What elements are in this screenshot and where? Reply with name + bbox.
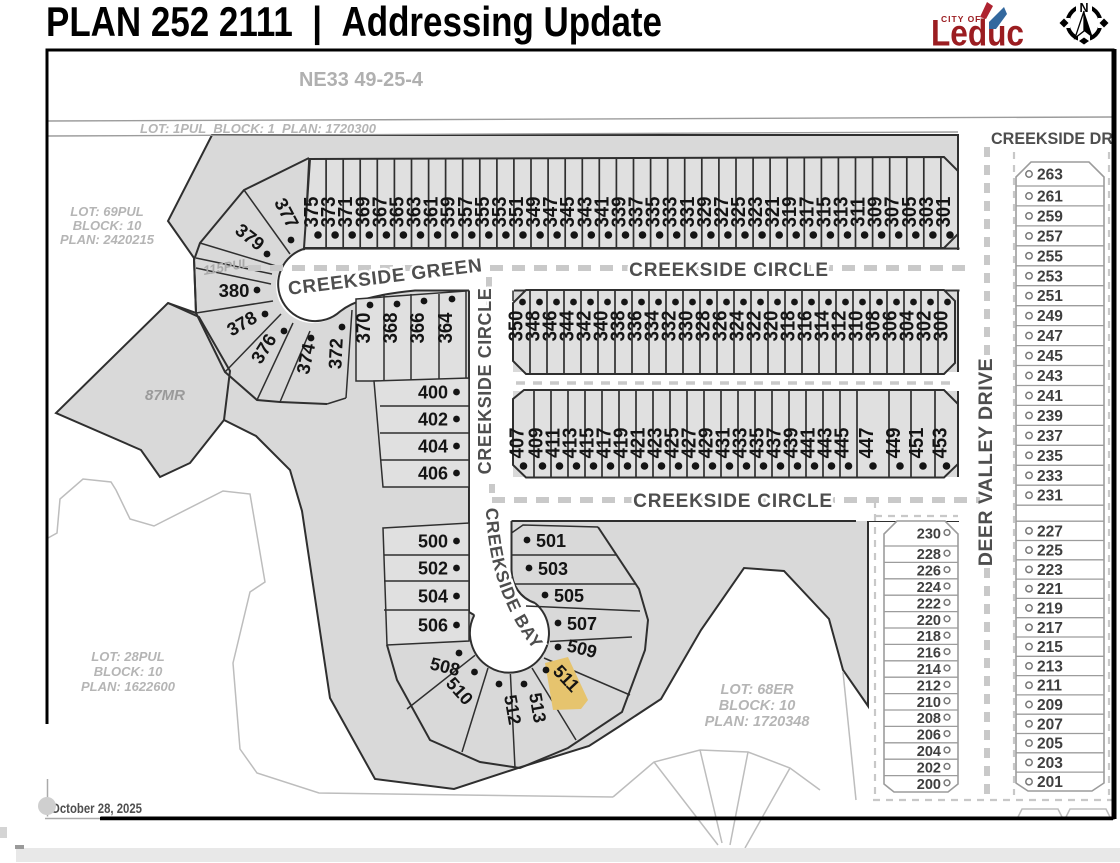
svg-text:505: 505: [554, 586, 584, 606]
svg-text:DEER VALLEY DRIVE: DEER VALLEY DRIVE: [975, 358, 997, 566]
svg-text:211: 211: [1037, 678, 1062, 695]
svg-text:204: 204: [917, 744, 941, 760]
svg-text:CREEKSIDE CIRCLE: CREEKSIDE CIRCLE: [629, 260, 829, 281]
svg-text:BLOCK: 10: BLOCK: 10: [73, 218, 142, 233]
svg-text:219: 219: [1037, 601, 1063, 618]
svg-text:506: 506: [418, 616, 448, 636]
svg-text:224: 224: [917, 580, 941, 596]
svg-text:218: 218: [917, 629, 941, 645]
svg-text:449: 449: [882, 428, 905, 459]
svg-text:368: 368: [379, 313, 402, 344]
svg-text:251: 251: [1037, 288, 1063, 305]
svg-text:504: 504: [418, 587, 448, 607]
svg-text:247: 247: [1037, 328, 1063, 345]
svg-text:451: 451: [905, 428, 928, 459]
svg-text:200: 200: [917, 777, 941, 793]
svg-text:215: 215: [1037, 639, 1063, 656]
svg-text:PLAN: 2420215: PLAN: 2420215: [60, 232, 155, 247]
svg-text:233: 233: [1037, 468, 1063, 485]
svg-text:October 28, 2025: October 28, 2025: [51, 800, 142, 816]
svg-text:BLOCK: 10: BLOCK: 10: [94, 664, 163, 679]
svg-text:226: 226: [917, 564, 941, 580]
svg-text:87MR: 87MR: [145, 387, 185, 404]
svg-text:N: N: [1079, 1, 1088, 15]
svg-text:445: 445: [831, 428, 854, 459]
svg-text:263: 263: [1037, 167, 1063, 184]
svg-text:CREEKSIDE CIRCLE: CREEKSIDE CIRCLE: [475, 288, 495, 475]
svg-text:502: 502: [418, 559, 448, 579]
svg-text:207: 207: [1037, 716, 1063, 733]
svg-text:LOT: 1PUL BLOCK: 1 PLAN: 172: LOT: 1PUL BLOCK: 1 PLAN: 1720300: [140, 121, 377, 136]
svg-text:447: 447: [855, 428, 878, 459]
svg-text:503: 503: [538, 559, 568, 579]
svg-text:231: 231: [1037, 488, 1063, 505]
svg-text:203: 203: [1037, 755, 1063, 772]
svg-text:245: 245: [1037, 348, 1063, 365]
svg-text:406: 406: [418, 464, 448, 484]
svg-text:237: 237: [1037, 428, 1063, 445]
svg-text:370: 370: [352, 313, 375, 344]
svg-text:225: 225: [1037, 543, 1063, 560]
svg-text:249: 249: [1037, 308, 1063, 325]
svg-text:LOT: 68ER: LOT: 68ER: [720, 682, 794, 698]
svg-text:404: 404: [418, 437, 448, 457]
svg-text:220: 220: [917, 613, 941, 629]
svg-text:230: 230: [917, 527, 941, 543]
svg-text:501: 501: [536, 531, 566, 551]
svg-text:380: 380: [219, 280, 250, 301]
svg-text:NE33 49-25-4: NE33 49-25-4: [299, 69, 424, 91]
svg-text:PLAN 252 2111 | Addressing U: PLAN 252 2111 | Addressing Update: [46, 0, 662, 46]
svg-text:PLAN: 1622600: PLAN: 1622600: [81, 679, 176, 694]
svg-text:259: 259: [1037, 208, 1063, 225]
svg-text:227: 227: [1037, 523, 1063, 540]
svg-text:205: 205: [1037, 736, 1063, 753]
svg-text:400: 400: [418, 383, 448, 403]
svg-text:223: 223: [1037, 562, 1063, 579]
svg-text:222: 222: [917, 596, 941, 612]
svg-text:500: 500: [418, 532, 448, 552]
svg-text:217: 217: [1037, 620, 1063, 637]
svg-text:228: 228: [917, 547, 941, 563]
svg-text:235: 235: [1037, 448, 1063, 465]
svg-text:210: 210: [917, 695, 941, 711]
svg-text:212: 212: [917, 678, 941, 694]
svg-text:PLAN: 1720348: PLAN: 1720348: [705, 714, 811, 730]
svg-text:BLOCK: 10: BLOCK: 10: [719, 698, 796, 714]
svg-text:209: 209: [1037, 697, 1063, 714]
svg-text:257: 257: [1037, 228, 1063, 245]
svg-text:201: 201: [1037, 774, 1063, 791]
svg-text:206: 206: [917, 728, 941, 744]
svg-text:202: 202: [917, 760, 941, 776]
svg-text:300: 300: [930, 311, 953, 342]
svg-text:CREEKSIDE CIRCLE: CREEKSIDE CIRCLE: [633, 491, 833, 512]
svg-text:CREEKSIDE DR: CREEKSIDE DR: [991, 129, 1113, 148]
svg-text:239: 239: [1037, 408, 1063, 425]
svg-text:214: 214: [917, 662, 941, 678]
svg-text:301: 301: [932, 197, 955, 228]
svg-text:Leduc: Leduc: [931, 13, 1024, 54]
svg-text:221: 221: [1037, 581, 1063, 598]
svg-text:LOT: 28PUL: LOT: 28PUL: [91, 649, 164, 664]
svg-text:255: 255: [1037, 248, 1063, 265]
svg-text:402: 402: [418, 410, 448, 430]
svg-text:243: 243: [1037, 368, 1063, 385]
svg-text:453: 453: [929, 428, 952, 459]
svg-text:364: 364: [434, 313, 457, 344]
svg-text:507: 507: [567, 614, 597, 634]
svg-text:208: 208: [917, 711, 941, 727]
svg-text:372: 372: [324, 338, 347, 370]
svg-text:213: 213: [1037, 658, 1063, 675]
svg-text:216: 216: [917, 646, 941, 662]
svg-text:LOT: 69PUL: LOT: 69PUL: [70, 204, 143, 219]
svg-text:366: 366: [406, 313, 429, 344]
svg-text:261: 261: [1037, 189, 1063, 206]
svg-text:241: 241: [1037, 388, 1063, 405]
svg-text:253: 253: [1037, 268, 1063, 285]
